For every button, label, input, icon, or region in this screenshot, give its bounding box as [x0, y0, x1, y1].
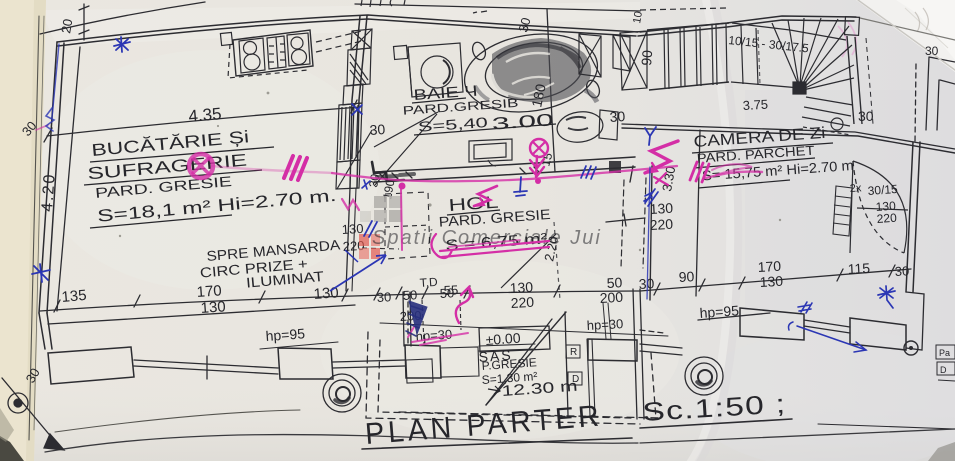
svg-text:130: 130: [649, 200, 673, 217]
svg-text:30: 30: [376, 289, 391, 305]
svg-text:Pa: Pa: [939, 348, 950, 358]
svg-text:50: 50: [402, 287, 417, 303]
svg-text:D: D: [940, 365, 947, 375]
svg-text:D: D: [572, 374, 579, 385]
svg-text:220: 220: [510, 294, 534, 311]
svg-text:hp=95: hp=95: [699, 302, 740, 321]
svg-text:135: 135: [61, 287, 87, 306]
svg-text:220: 220: [876, 211, 897, 226]
svg-text:30: 30: [925, 44, 939, 58]
svg-text:R: R: [570, 347, 577, 358]
svg-text:130: 130: [200, 298, 226, 317]
svg-text:200: 200: [599, 289, 623, 306]
svg-text:55: 55: [443, 282, 458, 298]
svg-text:90: 90: [678, 268, 695, 285]
svg-text:30: 30: [366, 173, 382, 189]
svg-text:30: 30: [858, 108, 874, 124]
svg-text:90: 90: [638, 49, 655, 66]
svg-text:4.20: 4.20: [39, 172, 59, 212]
svg-text:T.D: T.D: [419, 275, 438, 290]
svg-text:30: 30: [369, 121, 386, 138]
svg-text:115: 115: [847, 260, 870, 277]
svg-text:130: 130: [759, 273, 783, 290]
svg-text:20: 20: [58, 18, 75, 35]
svg-text:hp=95: hp=95: [265, 325, 306, 344]
svg-text:±0.00: ±0.00: [485, 330, 521, 348]
svg-text:220: 220: [649, 216, 673, 233]
svg-text:hp=30: hp=30: [586, 316, 623, 333]
svg-text:50: 50: [606, 274, 623, 291]
svg-text:4.35: 4.35: [188, 104, 223, 126]
svg-text:30: 30: [894, 263, 909, 279]
svg-text:3.75: 3.75: [742, 97, 768, 113]
svg-text:30: 30: [609, 108, 626, 125]
svg-text:30/15: 30/15: [867, 182, 898, 198]
svg-text:2x: 2x: [849, 182, 862, 195]
svg-text:10: 10: [631, 10, 645, 24]
